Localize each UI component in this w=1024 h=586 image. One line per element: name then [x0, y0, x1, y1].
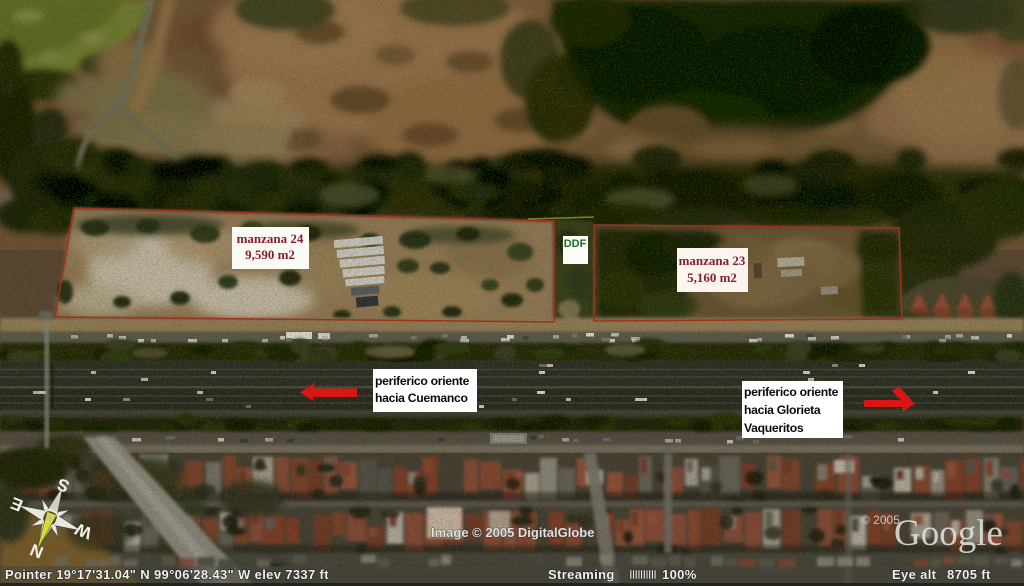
svg-text:Image © 2005 DigitalGlobe: Image © 2005 DigitalGlobe: [431, 525, 594, 540]
svg-text:Streaming: Streaming: [548, 567, 615, 582]
svg-text:periferico oriente: periferico oriente: [744, 385, 839, 399]
svg-text:8705 ft: 8705 ft: [947, 567, 991, 582]
svg-text:Pointer 19°17'31.04" N 99°06': Pointer 19°17'31.04" N 99°06'28.43" W el…: [5, 567, 329, 582]
svg-text:hacia Cuemanco: hacia Cuemanco: [375, 391, 468, 405]
svg-text:5,160 m2: 5,160 m2: [687, 270, 737, 285]
svg-text:100%: 100%: [662, 567, 697, 582]
svg-text:hacia Glorieta: hacia Glorieta: [744, 403, 821, 417]
svg-text:9,590 m2: 9,590 m2: [245, 247, 295, 262]
svg-text:Vaqueritos: Vaqueritos: [744, 421, 804, 435]
svg-text:periferico oriente: periferico oriente: [375, 374, 470, 388]
svg-text:manzana 23: manzana 23: [679, 253, 746, 268]
svg-text:Google: Google: [894, 513, 1003, 554]
svg-text:DDF: DDF: [564, 238, 587, 250]
svg-text:manzana 24: manzana 24: [237, 231, 304, 246]
svg-text:Eye alt: Eye alt: [892, 567, 937, 582]
